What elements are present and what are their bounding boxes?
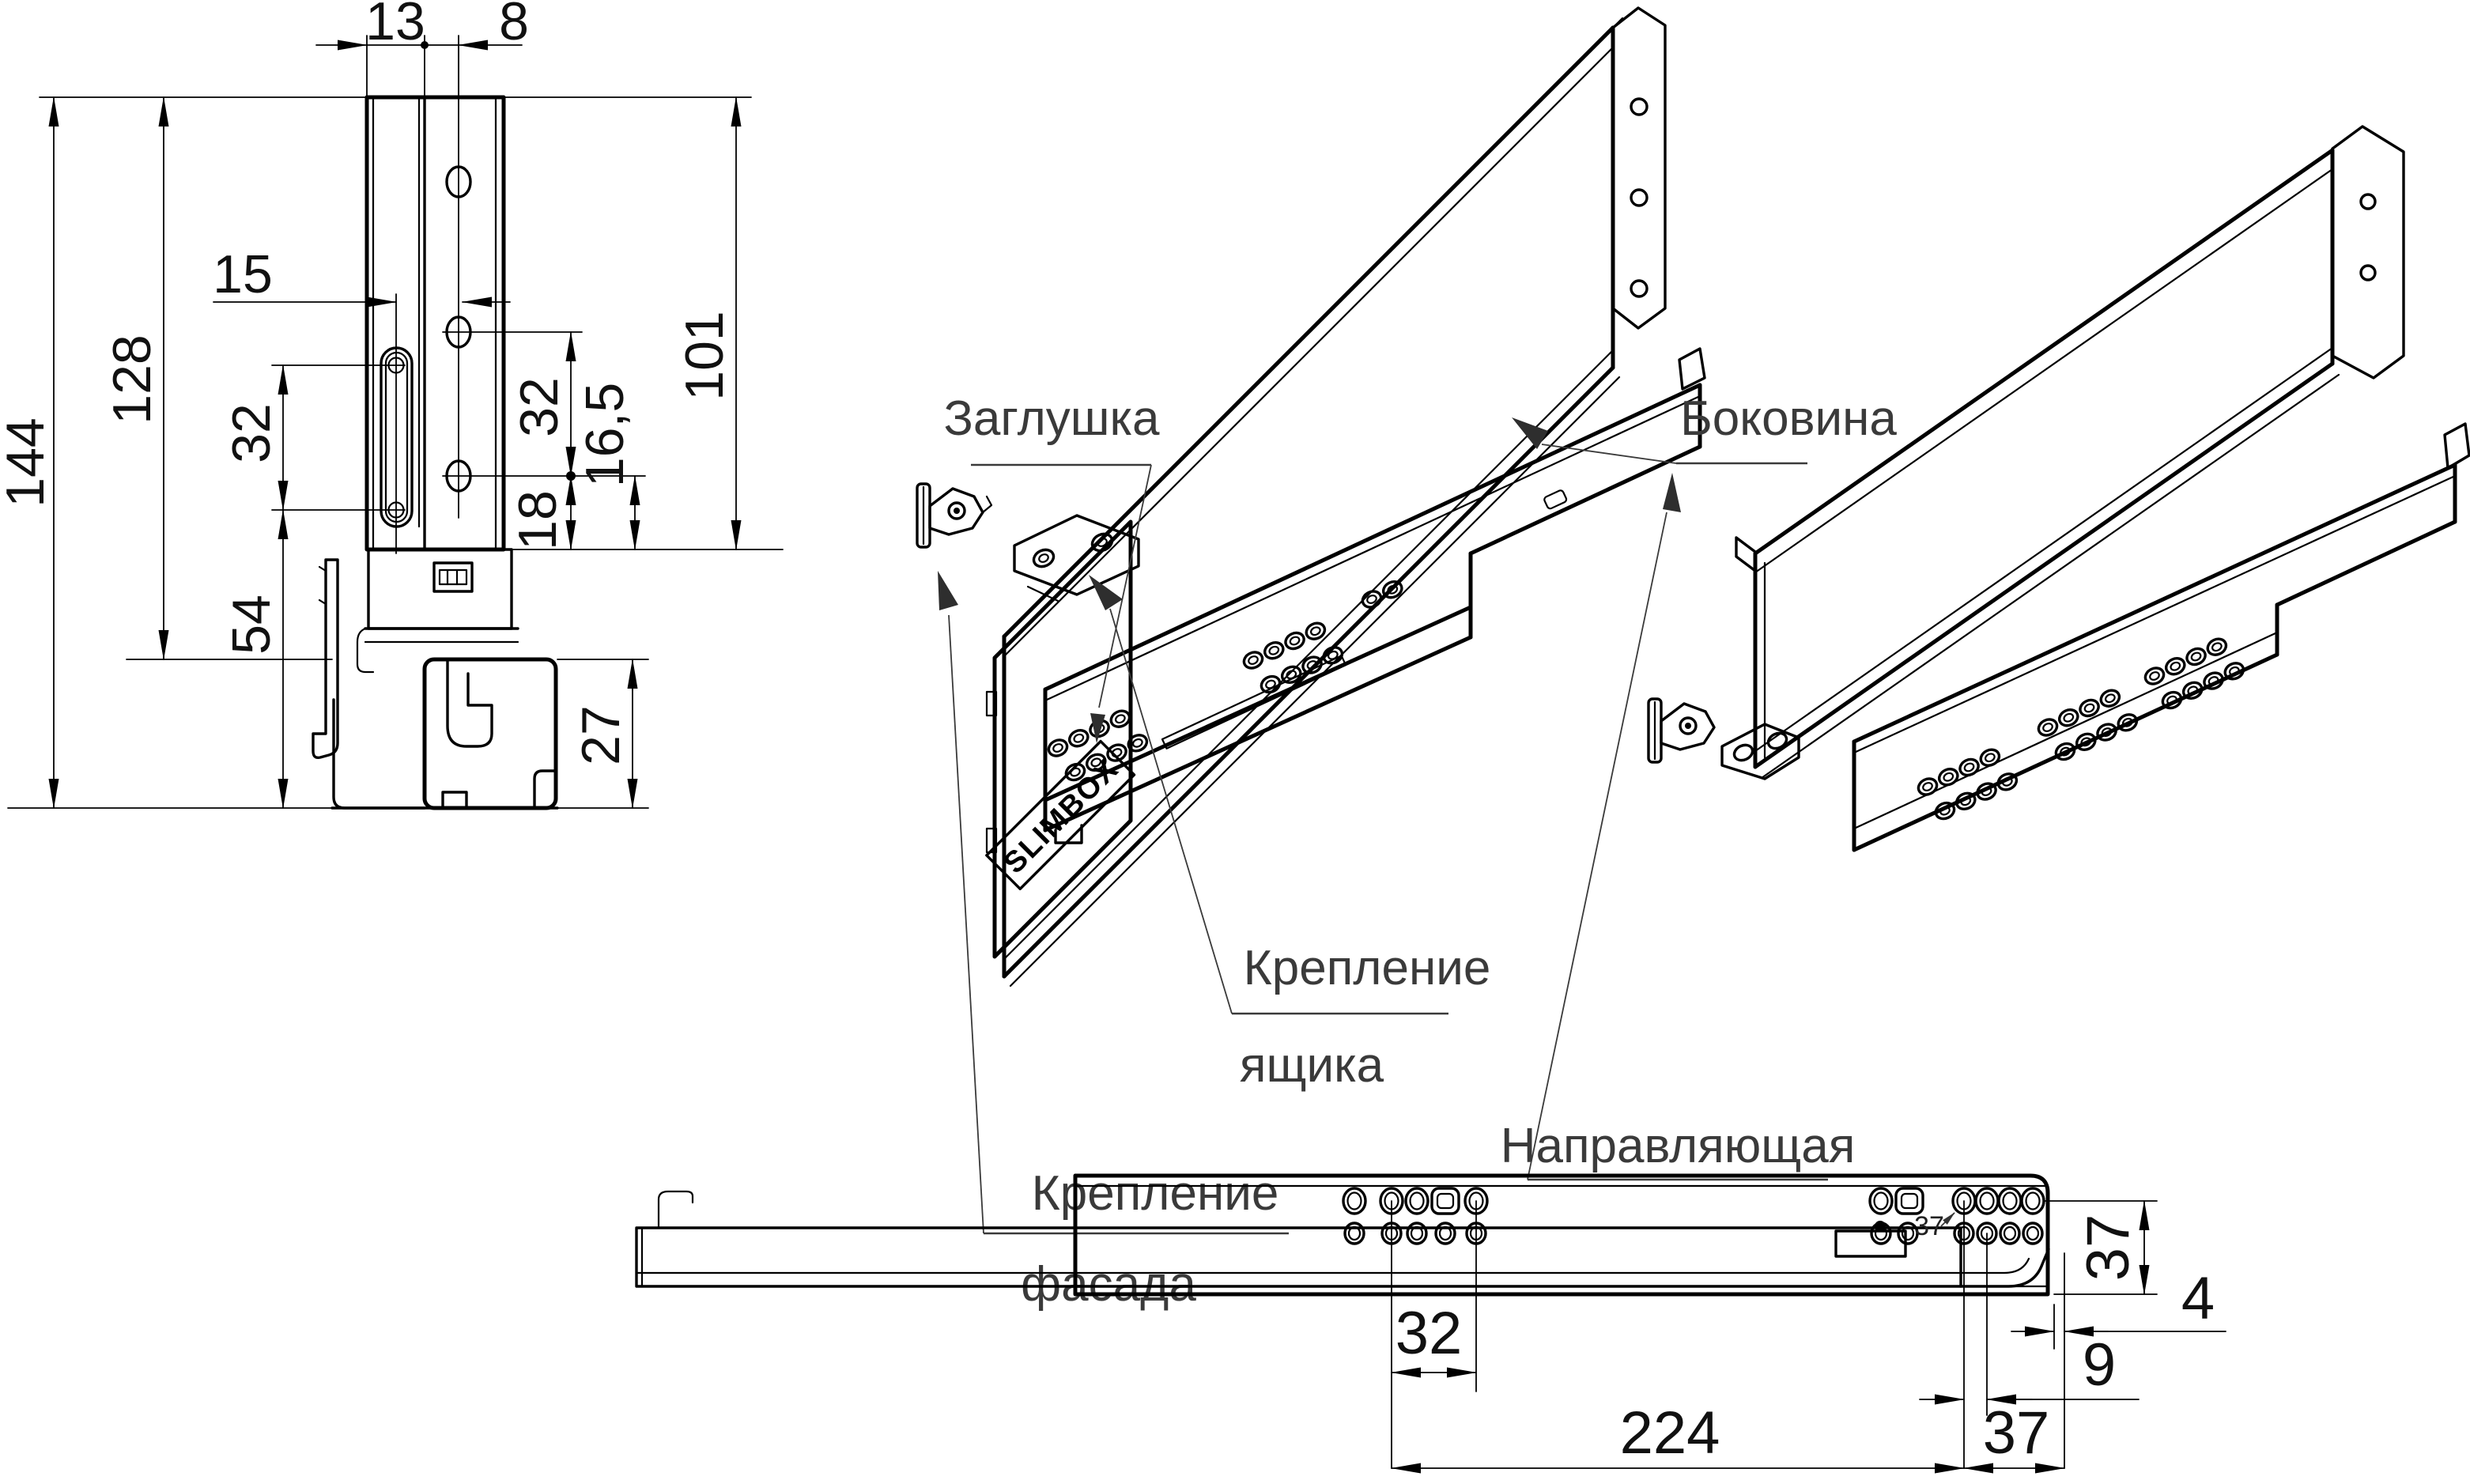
dim-hole-offset: 8 xyxy=(499,0,529,51)
side-panel-label: Боковина xyxy=(1680,391,1897,446)
dim-rail-height: 27 xyxy=(571,705,631,765)
bottom-view: 37 32 224 37 9 xyxy=(636,1176,2226,1468)
drawer-bracket-part xyxy=(1014,515,1139,601)
assembled-view xyxy=(1649,126,2469,850)
dim-panel-height: 128 xyxy=(102,334,162,424)
leader-arrowhead xyxy=(938,571,958,610)
bottom-dimensions: 32 224 37 9 4 37 xyxy=(1392,1201,2226,1468)
rail-front-hook xyxy=(659,1191,693,1228)
dim-lower-hole-gap: 18 xyxy=(508,490,568,550)
rail-side-profile: 37 xyxy=(636,1176,2049,1294)
section-view: 13 8 15 144 128 32 54 101 32 xyxy=(0,0,783,808)
technical-drawing-page: 13 8 15 144 128 32 54 101 32 xyxy=(0,0,2470,1484)
dim-mounting-length: 224 xyxy=(1620,1399,1720,1467)
callout-front-mount: Крепление фасада xyxy=(938,571,1289,1312)
hole-callout-37: 37 xyxy=(1914,1211,1944,1241)
front-mount-label-2: фасада xyxy=(1021,1257,1196,1312)
front-bracket-part xyxy=(917,484,991,547)
leader-arrowhead xyxy=(1663,473,1681,512)
exploded-view: SLIMBOX xyxy=(917,8,1897,1312)
callout-guide-rail: Направляющая xyxy=(1501,473,1856,1180)
dim-slot-pitch: 32 xyxy=(221,403,281,463)
dim-slot-offset: 15 xyxy=(213,244,273,304)
dim-side-hole-pitch: 32 xyxy=(1396,1300,1463,1367)
guide-rail-label: Направляющая xyxy=(1501,1119,1856,1173)
drawer-mount-label-1: Крепление xyxy=(1244,941,1491,995)
front-bracket-assembled xyxy=(1649,699,1714,762)
dim-overall-height: 144 xyxy=(0,417,55,507)
dim-hole-to-base: 16,5 xyxy=(575,383,635,487)
drawing-canvas: 13 8 15 144 128 32 54 101 32 xyxy=(0,0,2470,1484)
drawer-bracket-assembled xyxy=(1722,724,1799,779)
leader-arrowhead xyxy=(1090,713,1105,743)
dim-tail-length: 4 xyxy=(2181,1265,2215,1332)
dim-side-rail-height: 37 xyxy=(2075,1214,2142,1282)
drawer-mount-label-2: ящика xyxy=(1240,1038,1384,1093)
guide-rail-assembled xyxy=(1854,424,2469,850)
side-panel-assembled xyxy=(1736,126,2404,778)
callout-zaglushka: Заглушка xyxy=(943,391,1160,743)
dim-hole-pitch: 32 xyxy=(509,377,569,437)
dim-hole-field-height: 101 xyxy=(674,311,735,400)
dim-lower-height: 54 xyxy=(221,595,281,655)
dim-panel-width: 13 xyxy=(365,0,425,51)
cap-label: Заглушка xyxy=(943,391,1160,446)
dim-rear-offset: 37 xyxy=(1983,1399,2050,1467)
dim-hole-edge-offset: 9 xyxy=(2083,1331,2116,1399)
